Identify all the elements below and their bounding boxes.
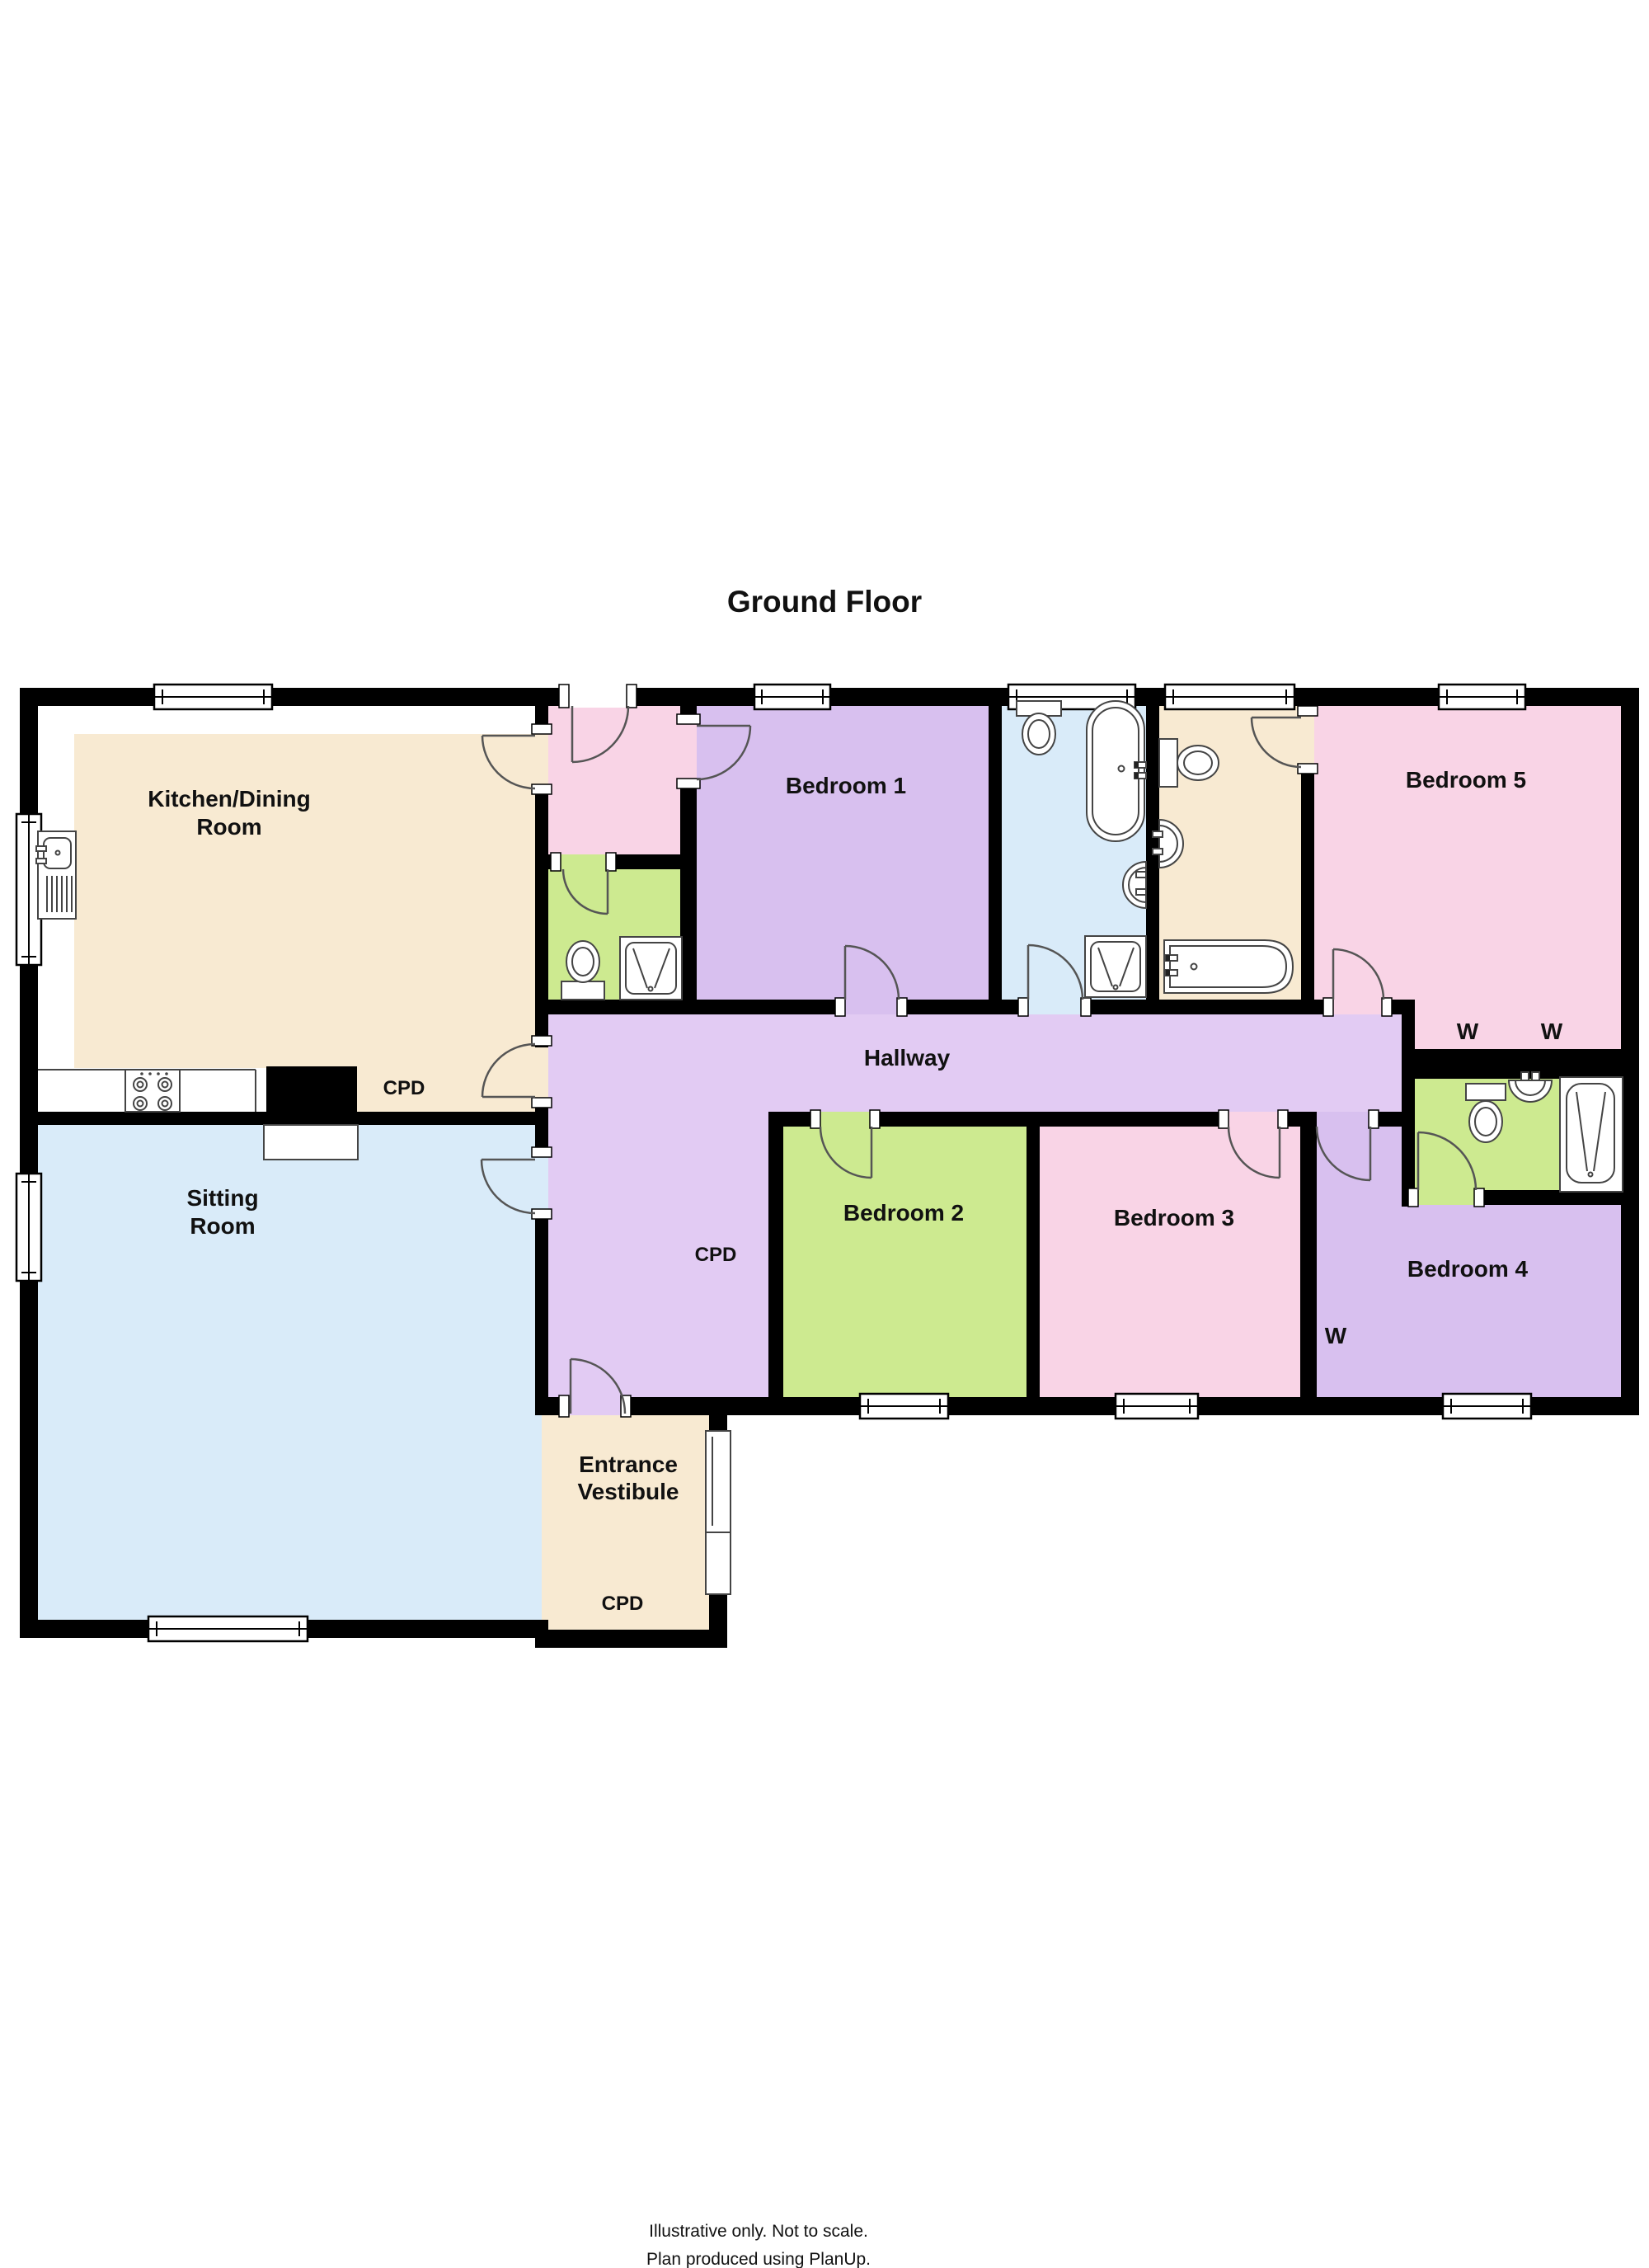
- window-bedroom3-bottom: [1116, 1394, 1198, 1419]
- wall-bedroom2-bedroom3: [1027, 1112, 1040, 1397]
- label-wardrobe-bedroom5-right: W: [1541, 1019, 1563, 1044]
- footer-line1: Illustrative only. Not to scale.: [649, 2222, 868, 2241]
- window-bedroom2-bottom: [860, 1394, 948, 1419]
- window-kitchen-top: [154, 685, 272, 709]
- window-ensuite5-top: [1165, 685, 1294, 709]
- wc-fixtures: [561, 937, 682, 1000]
- floor-plan-page: Ground Floor: [0, 0, 1649, 2268]
- label-bedroom2: Bedroom 2: [843, 1200, 964, 1226]
- ensuite5-bath: [1164, 940, 1293, 993]
- footer-disclaimer: Illustrative only. Not to scale. Plan pr…: [646, 2222, 871, 2268]
- wall-bedroom2-left: [768, 1112, 783, 1397]
- kitchen-hob: [125, 1070, 180, 1112]
- label-kitchen-line1: Kitchen/Dining: [148, 786, 311, 812]
- wall-bedroom3-bedroom4: [1300, 1112, 1317, 1397]
- label-wardrobe-bedroom4: W: [1325, 1323, 1347, 1348]
- label-vestibule-line1: Entrance: [579, 1452, 678, 1477]
- front-door: [706, 1431, 731, 1594]
- wc-shower: [620, 937, 682, 1000]
- label-cpd-hallway: CPD: [695, 1244, 737, 1266]
- wall-vestibule-bottom: [535, 1630, 727, 1648]
- chimney-breast: [266, 1066, 357, 1113]
- wall-bedroom1-bath: [989, 688, 1002, 1014]
- bathroom-shower: [1085, 936, 1146, 997]
- room-sitting: [33, 1122, 542, 1625]
- fireplace-recess: [264, 1125, 358, 1160]
- window-sitting-left: [16, 1174, 41, 1281]
- window-bedroom1-top: [754, 685, 830, 709]
- window-bedroom5-top: [1439, 685, 1525, 709]
- label-kitchen-line2: Room: [196, 814, 261, 840]
- label-bedroom4: Bedroom 4: [1407, 1256, 1529, 1282]
- label-cpd-kitchen: CPD: [383, 1077, 425, 1099]
- label-hallway: Hallway: [864, 1045, 951, 1070]
- wall-hallway-top: [535, 1000, 1415, 1014]
- label-wardrobe-bedroom5-left: W: [1457, 1019, 1479, 1044]
- room-bedroom3: [1037, 1118, 1303, 1403]
- kitchen-sink: [36, 831, 76, 919]
- ensuite4-shower: [1560, 1077, 1623, 1192]
- label-vestibule-line2: Vestibule: [578, 1479, 679, 1504]
- room-bedroom2: [781, 1118, 1028, 1403]
- label-bedroom3: Bedroom 3: [1114, 1205, 1234, 1230]
- room-bedroom1: [697, 701, 989, 1006]
- room-rear-lobby: [548, 701, 680, 859]
- ensuite4-toilet: [1466, 1084, 1506, 1142]
- page-title: Ground Floor: [727, 585, 922, 619]
- label-sitting-line2: Room: [190, 1213, 255, 1239]
- wall-hall-branch-right: [1402, 1000, 1415, 1207]
- label-sitting-line1: Sitting: [186, 1185, 258, 1211]
- window-sitting-bottom: [148, 1616, 308, 1641]
- window-bedroom4-bottom: [1443, 1394, 1531, 1419]
- room-fills: [33, 701, 1639, 1636]
- footer-line2: Plan produced using PlanUp.: [646, 2250, 871, 2268]
- wall-kitchen-sitting: [20, 1112, 548, 1125]
- floor-plan-drawing: Ground Floor: [0, 0, 1649, 2268]
- label-cpd-vestibule: CPD: [602, 1593, 644, 1615]
- label-bedroom1: Bedroom 1: [786, 773, 906, 798]
- label-bedroom5: Bedroom 5: [1406, 767, 1526, 793]
- bathroom-bath: [1087, 701, 1146, 841]
